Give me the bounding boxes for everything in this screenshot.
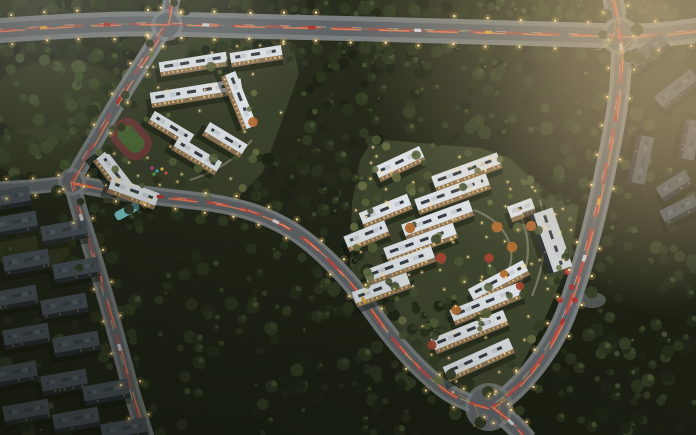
aerial-render-viewport — [0, 0, 696, 435]
vignette — [0, 0, 696, 435]
haze-layer — [0, 0, 696, 435]
masterplan-aerial-scene — [0, 0, 696, 435]
